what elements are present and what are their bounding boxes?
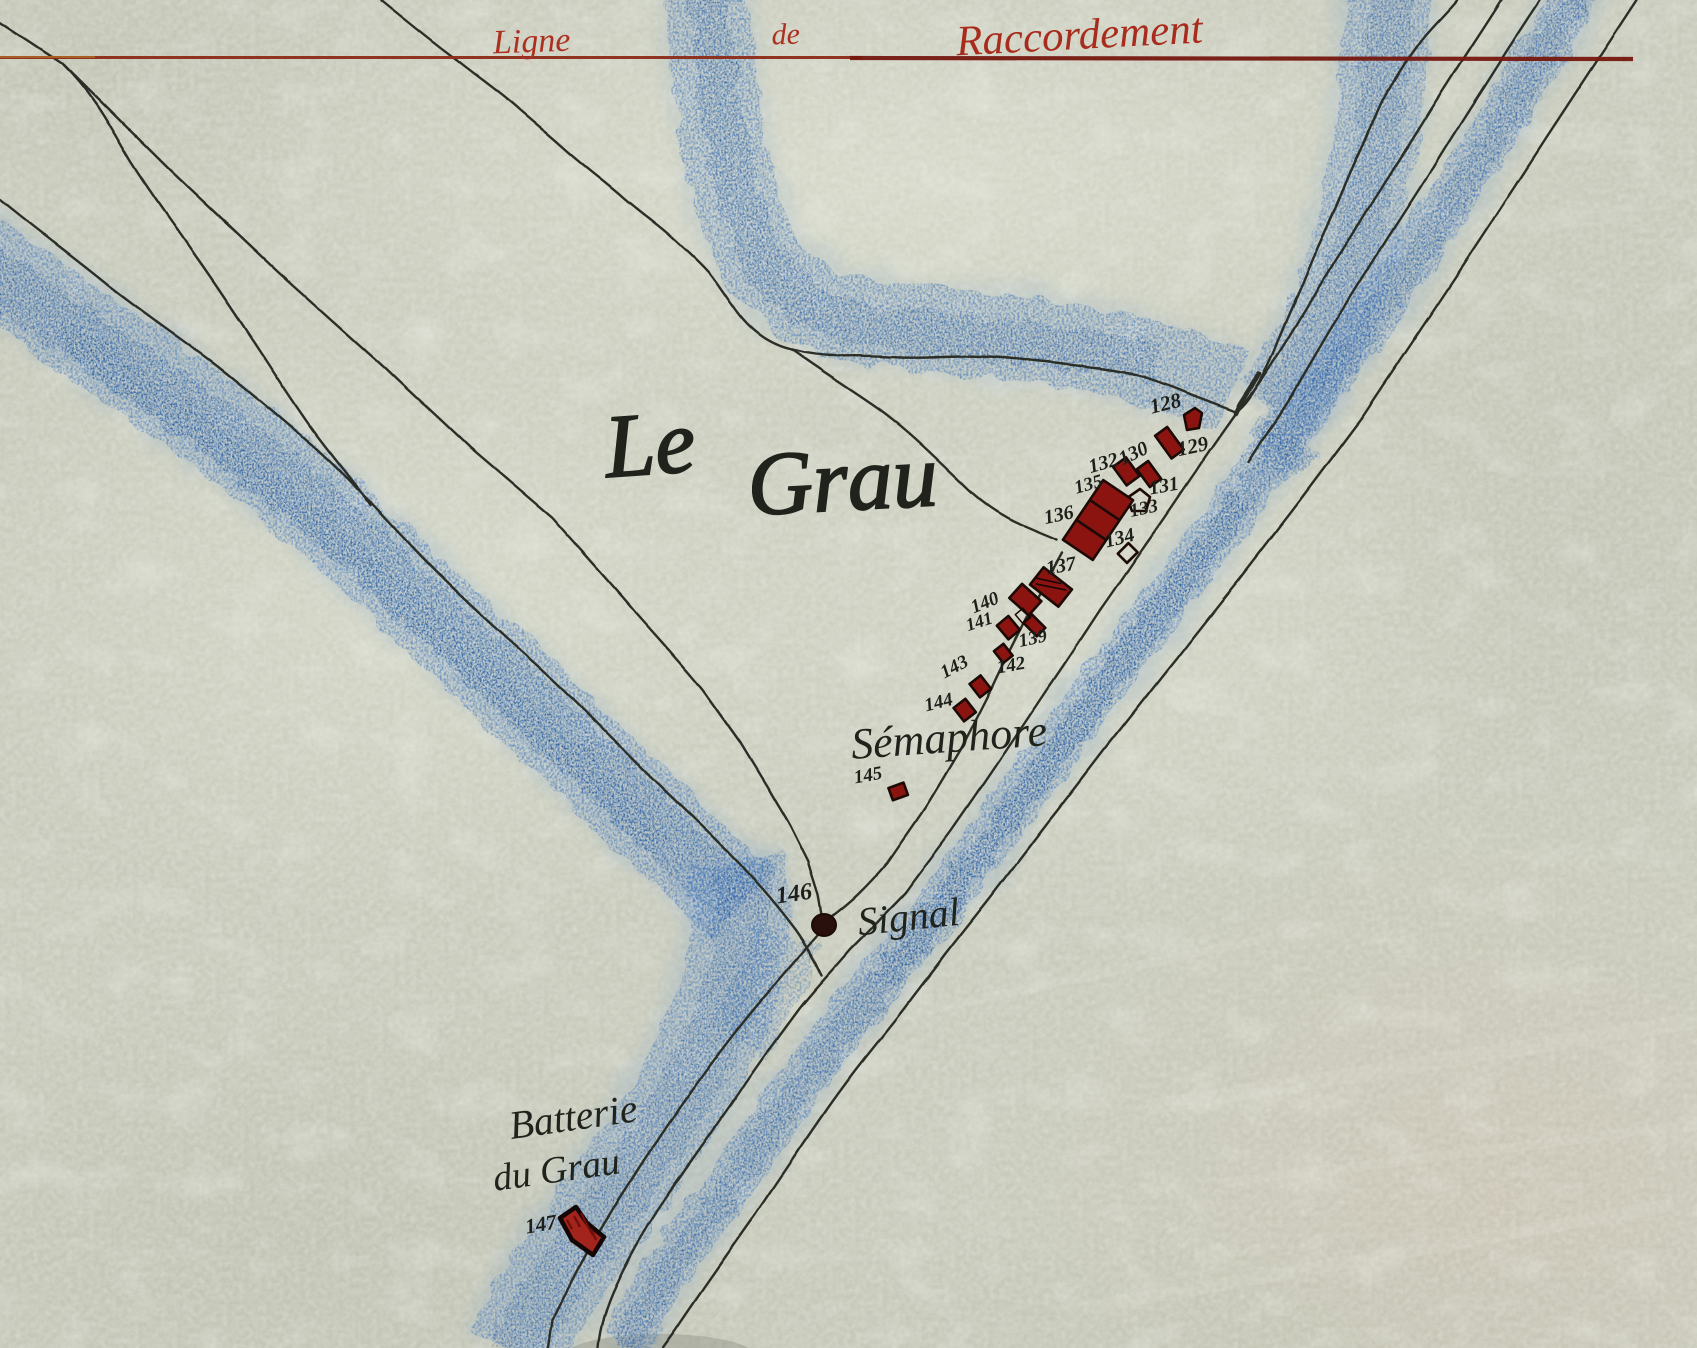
- svg-text:Grau: Grau: [745, 426, 940, 535]
- svg-text:Ligne: Ligne: [491, 22, 571, 62]
- svg-text:Le: Le: [600, 392, 699, 497]
- svg-text:de: de: [771, 18, 800, 52]
- svg-text:146: 146: [774, 879, 813, 910]
